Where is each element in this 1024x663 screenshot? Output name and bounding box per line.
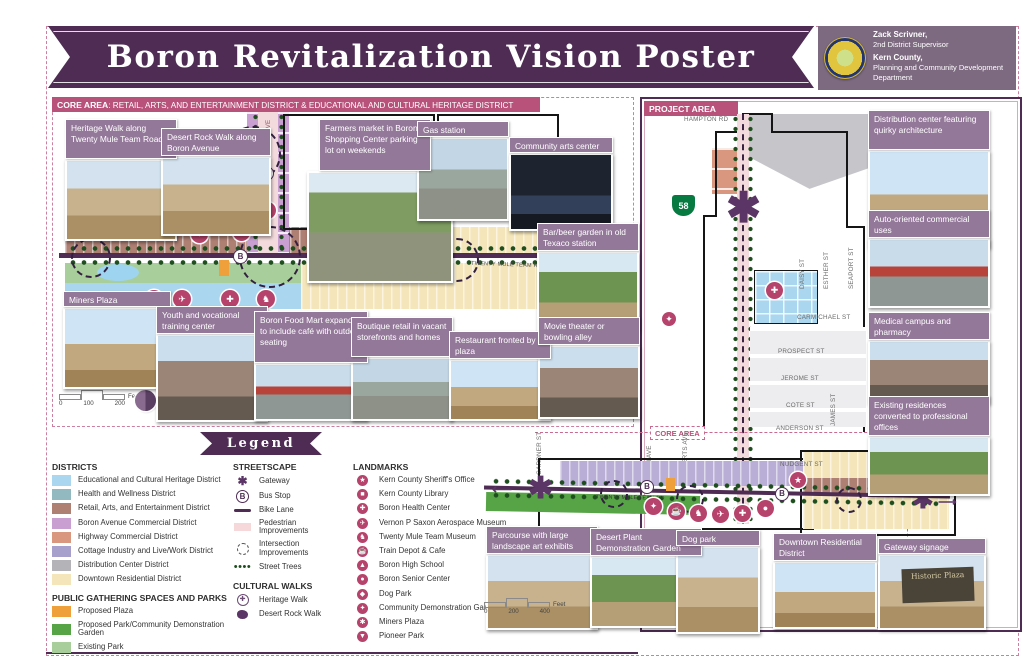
district-label: Distribution Center District [78, 561, 169, 570]
core-area-boundary-top [535, 432, 907, 433]
scale-tick: 200 [115, 400, 125, 407]
district-label: Boron Avenue Commercial District [78, 519, 197, 528]
landmark-label: Pioneer Park [379, 632, 424, 641]
callout-auto-oriented-photo [868, 238, 990, 308]
heritage-walk-icon: ✚ [237, 594, 249, 606]
park-label: Existing Park [78, 643, 124, 652]
legend-ribbon: Legend [200, 432, 322, 455]
callout-miners-plaza-photo [63, 307, 171, 389]
scale-tick: 200 [508, 608, 518, 615]
callout-downtown-residential-label: Downtown Residential District [773, 533, 877, 561]
core-area-inset-label: CORE AREA [655, 429, 700, 438]
bus-stop-icon: B [640, 480, 654, 494]
seaport-st-label: SEAPORT ST [848, 247, 855, 289]
core-map-scale: Feet 0 100 200 [59, 390, 140, 407]
streetscape-label: Street Trees [259, 563, 301, 572]
callout-parcourse-photo [486, 554, 598, 630]
lower-nudgent-label: NUDGENT ST [780, 461, 823, 468]
miners-plaza-icon: ✱ [357, 617, 368, 628]
callout-parcourse-label: Parcourse with large landscape art exhib… [486, 526, 598, 554]
county-library-icon: ■ [357, 489, 368, 500]
desert-rock-walk-icon [237, 610, 248, 619]
bus-stop-icon: B [775, 487, 789, 501]
intersection-improvements-icon [237, 543, 249, 555]
landmark-label: Miners Plaza [379, 618, 424, 627]
carmichael-st-label: CARMICHAEL ST [797, 314, 850, 321]
anderson-st-label: ANDERSON ST [776, 425, 824, 432]
landmark-icon: ♞ [690, 505, 707, 522]
landmark-label: Dog Park [379, 590, 412, 599]
proposed-plaza-square [666, 478, 675, 491]
prospect-st-label: PROSPECT ST [778, 348, 825, 355]
supervisor-title: 2nd District Supervisor [873, 40, 948, 49]
callout-restaurant-plaza-label: Restaurant fronted by a plaza [449, 331, 551, 359]
callout-restaurant-plaza-photo [449, 359, 551, 421]
streetscape-label: Gateway [259, 477, 290, 486]
health-center-icon: ✚ [766, 282, 783, 299]
callout-community-arts-label: Community arts center [509, 137, 613, 153]
streetscape-label: Intersection Improvements [259, 540, 345, 558]
sheriff-office-icon: ★ [357, 475, 368, 486]
train-depot-icon: ☕ [357, 546, 368, 557]
james-st-label: JAMES ST [830, 394, 837, 426]
callout-auto-oriented-label: Auto-oriented commercial uses [868, 210, 990, 238]
scale-tick: 100 [83, 400, 93, 407]
parks-heading: PUBLIC GATHERING SPACES AND PARKS [52, 593, 232, 603]
county-name: Kern County, [873, 53, 923, 62]
cultural-walk-label: Heritage Walk [259, 596, 308, 605]
core-area-header: CORE AREA: RETAIL, ARTS, AND ENTERTAINME… [52, 97, 540, 112]
callout-movie-theater-label: Movie theater or bowling alley [538, 317, 640, 345]
callout-dog-park-label: Dog park [676, 530, 760, 546]
landmark-label: Kern County Library [379, 490, 448, 499]
callout-boutique-retail-photo [351, 357, 453, 421]
cote-st-label: COTE ST [786, 402, 815, 409]
landmark-label: Boron Senior Center [379, 575, 450, 584]
callout-movie-theater-photo [538, 345, 640, 419]
cultural-walks-heading: CULTURAL WALKS [233, 581, 345, 591]
gateway-icon: ✱ [726, 187, 761, 229]
callout-youth-center-photo [156, 334, 268, 422]
district-swatch [52, 546, 71, 557]
kern-county-seal-icon [824, 37, 866, 79]
bus-stop-icon: B [236, 490, 249, 503]
callout-existing-residences-label: Existing residences converted to profess… [868, 396, 990, 436]
senior-center-icon: ● [357, 574, 368, 585]
callout-desert-rock-walk-label: Desert Rock Walk along Boron Avenue [161, 128, 271, 156]
legend-streetscape: STREETSCAPE ✱Gateway BBus Stop Bike Lane… [233, 462, 345, 622]
landmark-icon: ★ [790, 472, 806, 488]
park-label: Proposed Plaza [78, 607, 133, 616]
park-swatch [52, 642, 71, 653]
district-swatch [52, 560, 71, 571]
district-label: Downtown Residential District [78, 575, 181, 584]
highway-58-shield: 58 [672, 195, 695, 216]
aerospace-museum-icon: ✈ [357, 518, 368, 529]
historic-plaza-sign: Historic Plaza [901, 567, 974, 603]
callout-boutique-retail-label: Boutique retail in vacant storefronts an… [351, 317, 453, 357]
core-area-label-box: CORE AREA [650, 426, 705, 440]
callout-youth-center-label: Youth and vocational training center [156, 306, 268, 334]
park-swatch [52, 624, 71, 635]
core-area-header-subtitle: : RETAIL, ARTS, AND ENTERTAINMENT DISTRI… [108, 101, 513, 110]
district-label: Educational and Cultural Heritage Distri… [78, 476, 221, 485]
callout-dog-park-photo [676, 546, 760, 634]
callout-medical-campus-label: Medical campus and pharmacy [868, 312, 990, 340]
landmark-label: Boron Health Center [379, 504, 450, 513]
north-arrow-icon [135, 390, 156, 411]
scale-unit: Feet [553, 601, 565, 608]
core-area-header-title: CORE AREA [57, 100, 108, 110]
project-map-scale: Feet 0 200 400 [484, 598, 565, 615]
landmark-icon: ✚ [734, 505, 751, 522]
park-swatch [52, 606, 71, 617]
callout-community-arts-photo [509, 153, 613, 231]
landmark-icon: ✦ [645, 498, 662, 515]
district-label: Health and Wellness District [78, 490, 175, 499]
landmark-icon: ☕ [668, 503, 685, 520]
park-label: Proposed Park/Community Demonstration Ga… [78, 621, 232, 639]
esther-st-label: ESTHER ST [823, 252, 830, 289]
dog-park-icon: ◆ [357, 589, 368, 600]
gateway-icon-west: ✱ [528, 474, 553, 504]
callout-desert-rock-walk-photo [161, 156, 271, 236]
callout-medical-campus-photo [868, 340, 990, 404]
health-center-icon: ✚ [357, 503, 368, 514]
gateway-icon: ✱ [233, 475, 252, 487]
gateway-arrow-east: ⟶ [938, 495, 957, 508]
landmark-icon: ✦ [662, 312, 676, 326]
poster-root: Boron Revitalization Vision Poster Zack … [0, 0, 1024, 663]
callout-farmers-market-label: Farmers market in Boron Shopping Center … [319, 119, 431, 171]
intersection-improvement [836, 487, 862, 513]
district-label: Highway Commercial District [78, 533, 178, 542]
bike-lane-icon [234, 509, 251, 512]
district-swatch [52, 503, 71, 514]
scale-tick: 400 [540, 608, 550, 615]
district-swatch [52, 532, 71, 543]
scale-tick: 0 [484, 608, 487, 615]
demonstration-garden-icon: ✦ [357, 603, 368, 614]
callout-bar-beer-garden-label: Bar/beer garden in old Texaco station [537, 223, 639, 251]
district-swatch [52, 475, 71, 486]
department-name: Planning and Community Development Depar… [873, 63, 1003, 81]
historic-plaza-sign-text: Historic Plaza [911, 570, 965, 581]
landmark-label: Train Depot & Cafe [379, 547, 445, 556]
highway-58-number: 58 [678, 201, 688, 211]
jerome-st-label: JEROME ST [781, 375, 819, 382]
legend-title: Legend [227, 436, 295, 451]
pioneer-park-icon: ▼ [357, 631, 368, 642]
landmark-icon: ✈ [712, 506, 729, 523]
streetscape-label: Bike Lane [259, 506, 294, 515]
streetscape-label: Bus Stop [259, 492, 291, 501]
high-school-icon: ▲ [357, 560, 368, 571]
mule-team-museum-icon: ♞ [357, 532, 368, 543]
landmark-label: Kern County Sheriff's Office [379, 476, 475, 485]
districts-heading: DISTRICTS [52, 462, 232, 472]
district-label: Retail, Arts, and Entertainment District [78, 504, 210, 513]
callout-downtown-residential-photo [773, 561, 877, 629]
supervisor-name: Zack Scrivner, [873, 30, 927, 39]
streetscape-heading: STREETSCAPE [233, 462, 345, 472]
legend-districts: DISTRICTS Educational and Cultural Herit… [52, 462, 232, 656]
street-trees-icon: •••• [233, 561, 252, 574]
landmark-label: Boron High School [379, 561, 444, 570]
title-banner: Boron Revitalization Vision Poster [48, 26, 814, 88]
callout-existing-residences-photo [868, 436, 990, 496]
credits-text: Zack Scrivner, 2nd District Supervisor K… [873, 30, 1016, 86]
poster-title: Boron Revitalization Vision Poster [107, 39, 756, 75]
proposed-plaza-square [219, 260, 229, 276]
callout-gas-station-label: Gas station [417, 121, 509, 137]
scale-tick: 0 [59, 400, 62, 407]
intersection-improvement [600, 480, 628, 508]
intersection-improvement [71, 238, 111, 278]
daisy-st-label: DAISY ST [799, 259, 806, 289]
credits-box: Zack Scrivner, 2nd District Supervisor K… [818, 26, 1016, 90]
district-swatch [52, 518, 71, 529]
callout-miners-plaza-label: Miners Plaza [63, 291, 171, 307]
district-swatch [52, 489, 71, 500]
streetscape-label: Pedestrian Improvements [259, 519, 345, 537]
landmarks-heading: LANDMARKS [353, 462, 523, 472]
bus-stop-icon: B [233, 249, 248, 264]
district-swatch [52, 574, 71, 585]
callout-distribution-center-label: Distribution center featuring quirky arc… [868, 110, 990, 150]
landmark-label: Community Demonstration Garden [379, 604, 499, 613]
cultural-walk-label: Desert Rock Walk [259, 610, 321, 619]
callout-gateway-signage-label: Gateway signage [878, 538, 986, 554]
landmark-icon: ● [757, 500, 774, 517]
pedestrian-improvements-icon [234, 523, 251, 531]
landmark-label: Twenty Mule Team Museum [379, 533, 476, 542]
core-area-panel: CORE AREA: RETAIL, ARTS, AND ENTERTAINME… [52, 97, 634, 427]
district-label: Cottage Industry and Live/Work District [78, 547, 213, 556]
